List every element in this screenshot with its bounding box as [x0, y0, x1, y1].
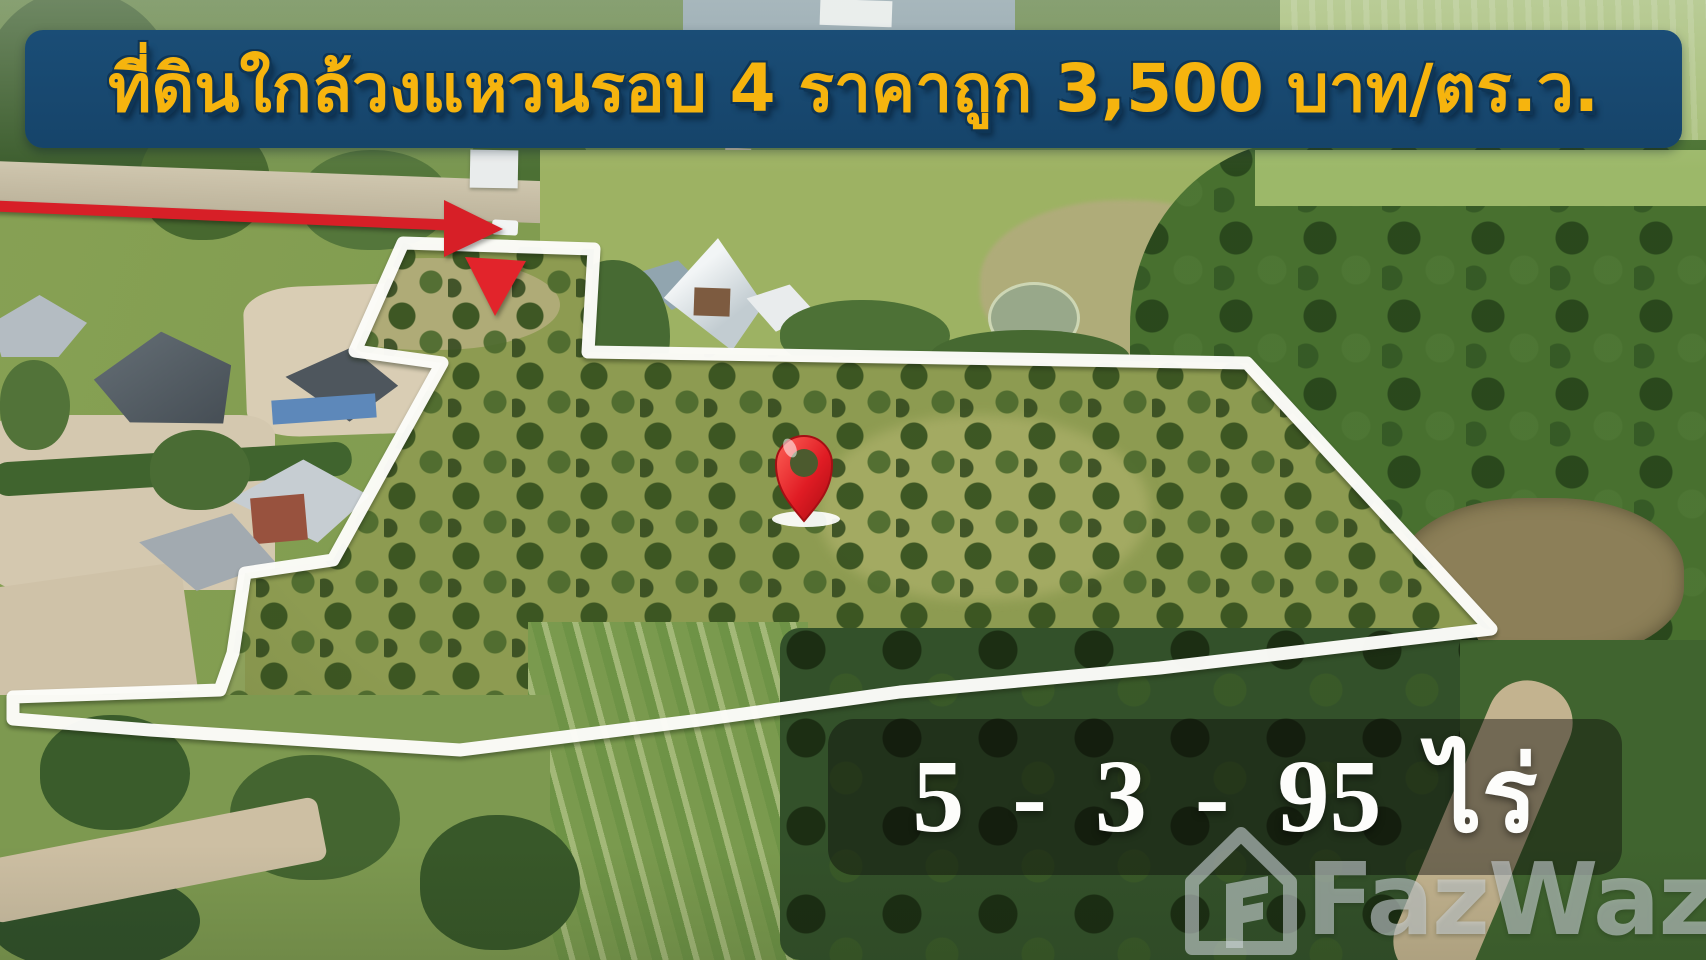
house-logo-icon: [1182, 820, 1300, 960]
listing-image: 5 - 3 - 95 ไร่ ที่ดินใกล้วงแหวนรอบ 4 ราค…: [0, 0, 1706, 960]
title-banner: ที่ดินใกล้วงแหวนรอบ 4 ราคาถูก 3,500 บาท/…: [25, 30, 1682, 148]
watermark-text: FazWaz: [1306, 850, 1706, 950]
banner-text: ที่ดินใกล้วงแหวนรอบ 4 ราคาถูก 3,500 บาท/…: [108, 56, 1599, 122]
fazwaz-watermark: FazWaz: [1182, 820, 1706, 960]
location-pin-icon: [772, 436, 840, 527]
triangle-marker-icon: [465, 257, 526, 316]
land-boundary-outline: [13, 243, 1491, 750]
